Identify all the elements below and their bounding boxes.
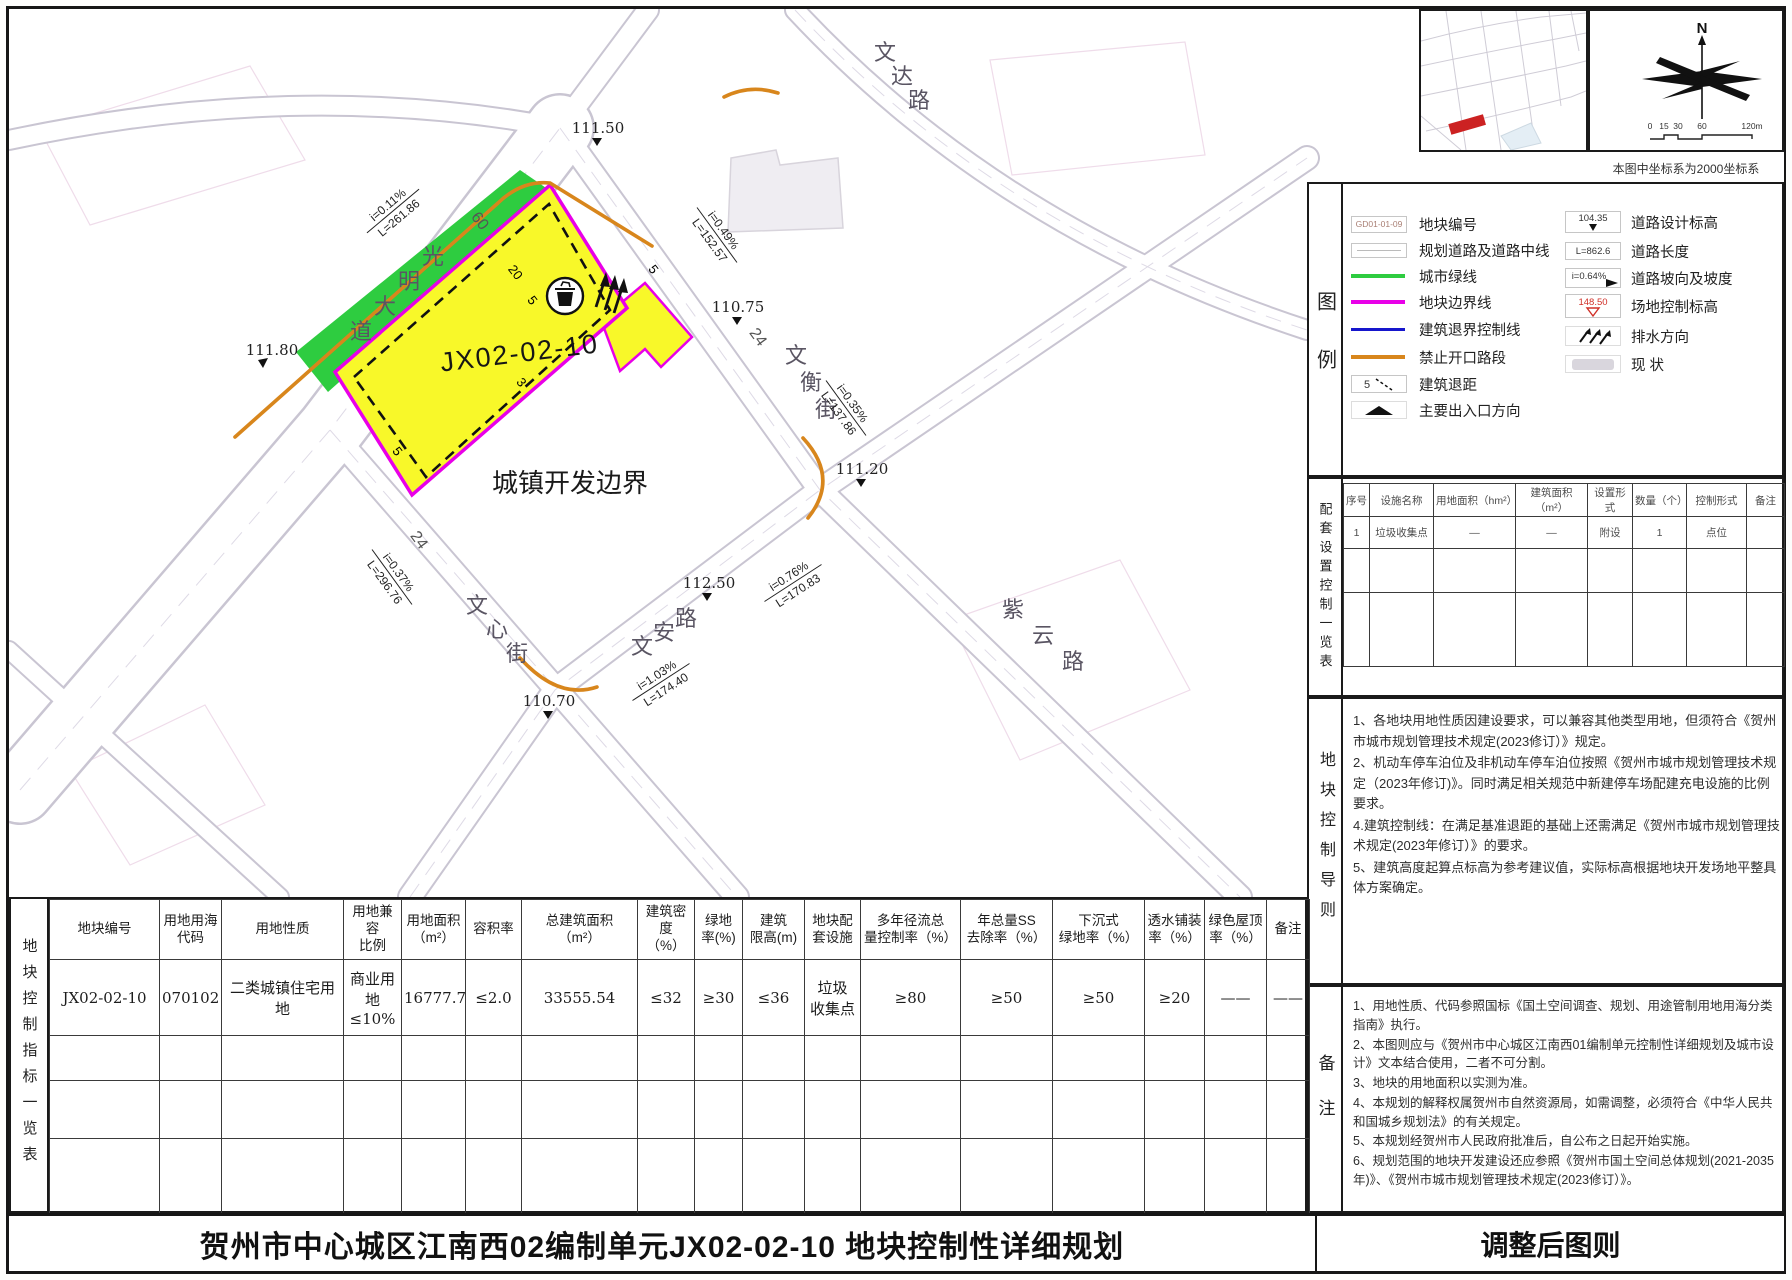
table-cell: 垃圾 收集点 [805, 960, 861, 1036]
empty-cell [1205, 1139, 1267, 1216]
setback-line-swatch [1351, 328, 1405, 331]
road-slope-swatch: i=0.64% [1565, 268, 1621, 288]
empty-cell [743, 1081, 805, 1139]
setback-sample: 5 [1364, 379, 1370, 391]
empty-cell [402, 1139, 466, 1216]
empty-cell [344, 1036, 402, 1081]
empty-cell [522, 1036, 638, 1081]
compass: N 0 15 30 60 120m [1590, 11, 1782, 150]
parcel-code-swatch: GD01-01-09 [1351, 216, 1407, 233]
empty-cell [344, 1139, 402, 1216]
table-cell: 用地性质 [222, 900, 344, 960]
empty-cell [638, 1081, 695, 1139]
legend-item-label: 建筑退界控制线 [1419, 319, 1521, 340]
empty-cell [805, 1036, 861, 1081]
facilities-data-row: 1垃圾收集点——附设1点位 [1344, 517, 1785, 549]
empty-cell [1516, 593, 1588, 667]
legend-item-label: 地块编号 [1419, 214, 1477, 235]
empty-cell [638, 1036, 695, 1081]
table-cell: 绿色屋顶 率（%） [1205, 900, 1267, 960]
trash-collection-icon [547, 278, 583, 314]
elevation-value: 112.50 [683, 574, 736, 592]
empty-cell [1267, 1081, 1310, 1139]
guideline-item: 1、各地块用地性质因建设要求，可以兼容其他类型用地，但须符合《贺州市城市规划管理… [1353, 711, 1781, 752]
road-elevation-swatch: 104.35 [1565, 211, 1621, 233]
no-opening-swatch [1351, 355, 1405, 359]
legend-item-label: 现 状 [1631, 354, 1664, 375]
empty-cell [50, 1081, 160, 1139]
guideline-item: 4.建筑控制线：在满足基准退距的基础上还需满足《贺州市城市规划管理技术规定(20… [1353, 816, 1781, 857]
empty-cell [695, 1081, 743, 1139]
empty-cell [1633, 549, 1687, 593]
table-cell: —— [1267, 960, 1310, 1036]
green-line-swatch [1351, 274, 1405, 278]
table-cell: 序号 [1344, 484, 1370, 517]
empty-cell [695, 1036, 743, 1081]
remarks-item: 4、本规划的解释权属贺州市自然资源局，如需调整，必须符合《中华人民共和国城乡规划… [1353, 1094, 1781, 1132]
table-cell: 垃圾收集点 [1370, 517, 1434, 549]
empty-cell [638, 1139, 695, 1216]
legend-item-label: 场地控制标高 [1631, 296, 1718, 317]
empty-cell [402, 1036, 466, 1081]
remarks-item: 6、规划范围的地块开发建设还应参照《贺州市国土空间总体规划(2021-2035年… [1353, 1152, 1781, 1190]
empty-cell [1687, 549, 1747, 593]
empty-cell [1205, 1036, 1267, 1081]
table-cell: 设置形式 [1588, 484, 1633, 517]
table-cell: 设施名称 [1370, 484, 1434, 517]
title-bar: 贺州市中心城区江南西02编制单元JX02-02-10 地块控制性详细规划 调整后… [9, 1213, 1784, 1271]
empty-cell [961, 1036, 1053, 1081]
empty-cell [1145, 1139, 1205, 1216]
legend-item-label: 规划道路及道路中线 [1419, 240, 1550, 261]
facilities-section: 配套设置控制一览表 序号设施名称用地面积（hm²）建筑面积（m²）设置形式数量（… [1307, 477, 1784, 697]
road-elevation-sample: 104.35 [1578, 213, 1607, 224]
empty-cell [1370, 549, 1434, 593]
table-cell: 二类城镇住宅用地 [222, 960, 344, 1036]
table-cell: 地块配 套设施 [805, 900, 861, 960]
empty-cell [861, 1139, 961, 1216]
svg-text:30: 30 [1673, 121, 1683, 131]
table-cell: 绿地 率(%) [695, 900, 743, 960]
elevation-value: 111.80 [246, 341, 299, 359]
table-cell: 16777.77 [402, 960, 466, 1036]
table-cell: ≥30 [695, 960, 743, 1036]
legend-item-label: 主要出入口方向 [1419, 400, 1521, 421]
svg-text:120m: 120m [1741, 121, 1762, 131]
remarks-title: 备注 [1313, 1054, 1338, 1144]
table-cell [1747, 517, 1785, 549]
parcel-boundary-swatch [1351, 300, 1405, 304]
empty-cell [160, 1139, 222, 1216]
remarks-item: 3、地块的用地面积以实测为准。 [1353, 1074, 1781, 1093]
empty-cell [344, 1081, 402, 1139]
drainage-direction-swatch [1565, 326, 1621, 346]
remarks-section: 备注 1、用地性质、代码参照国标《国土空间调查、规划、用途管制用地用海分类指南》… [1307, 985, 1784, 1213]
legend-item-label: 地块边界线 [1419, 292, 1492, 313]
elevation-value: 111.20 [836, 460, 889, 478]
empty-cell [1747, 549, 1785, 593]
table-cell: ≤2.0 [466, 960, 522, 1036]
table-cell: —— [1205, 960, 1267, 1036]
site-elevation-swatch: 148.50 [1565, 294, 1621, 318]
scale-bar: 0 15 30 60 120m [1648, 121, 1763, 139]
table-cell: JX02-02-10 [50, 960, 160, 1036]
table-cell: 用地面积（hm²） [1434, 484, 1516, 517]
existing-state-swatch [1565, 355, 1621, 373]
table-cell: 点位 [1687, 517, 1747, 549]
guideline-section: 地块控制导则 1、各地块用地性质因建设要求，可以兼容其他类型用地，但须符合《贺州… [1307, 697, 1784, 985]
guideline-item: 2、机动车停车泊位及非机动车停车泊位按照《贺州市城市规划管理技术规定（2023年… [1353, 753, 1781, 815]
sheet-main-title: 贺州市中心城区江南西02编制单元JX02-02-10 地块控制性详细规划 [9, 1216, 1317, 1271]
coordinate-note: 本图中坐标系为2000坐标系 [1588, 160, 1784, 177]
remarks-item: 1、用地性质、代码参照国标《国土空间调查、规划、用途管制用地用海分类指南》执行。 [1353, 997, 1781, 1035]
empty-cell [695, 1139, 743, 1216]
location-inset-map [1421, 11, 1586, 150]
table-cell: 070102 [160, 960, 222, 1036]
indicator-empty-row [50, 1139, 1310, 1216]
elevation-value: 110.75 [712, 298, 765, 316]
plan-sheet: JX02-02-10 城镇开发边界 光明大道 文达路 文衡街 文心街 文安路 紫… [0, 0, 1792, 1280]
empty-cell [1588, 549, 1633, 593]
table-cell: 控制形式 [1687, 484, 1747, 517]
table-cell: 附设 [1588, 517, 1633, 549]
table-cell: ≥20 [1145, 960, 1205, 1036]
guideline-item: 5、建筑高度起算点标高为参考建议值，实际标高根据地块开发场地平整具体方案确定。 [1353, 858, 1781, 899]
empty-cell [1370, 593, 1434, 667]
development-boundary-label: 城镇开发边界 [492, 468, 648, 498]
empty-cell [1267, 1036, 1310, 1081]
compass-box: N 0 15 30 60 120m [1588, 9, 1784, 152]
table-cell: 用地面积 （m²） [402, 900, 466, 960]
empty-cell [160, 1081, 222, 1139]
table-cell: 总建筑面积 （m²） [522, 900, 638, 960]
table-cell: ≥50 [961, 960, 1053, 1036]
empty-cell [961, 1139, 1053, 1216]
table-cell: 数量（个） [1633, 484, 1687, 517]
legend-section: 图例 GD01-01-09 地块编号 规划道路及道路中线 城市绿线 地块边界线 … [1307, 182, 1784, 477]
legend-item-label: 道路设计标高 [1631, 212, 1718, 233]
legend-item-label: 排水方向 [1631, 326, 1689, 347]
legend-item-label: 道路坡向及坡度 [1631, 268, 1733, 289]
empty-cell [1344, 593, 1370, 667]
table-cell: ≥80 [861, 960, 961, 1036]
table-cell: ≤36 [743, 960, 805, 1036]
remarks-item: 2、本图则应与《贺州市中心城区江南西01编制单元控制性详细规划及城市设计》文本结… [1353, 1036, 1781, 1074]
facilities-empty-row [1344, 593, 1785, 667]
facilities-header-row: 序号设施名称用地面积（hm²）建筑面积（m²）设置形式数量（个）控制形式备注 [1344, 484, 1785, 517]
remarks-text: 1、用地性质、代码参照国标《国土空间调查、规划、用途管制用地用海分类指南》执行。… [1343, 987, 1792, 1191]
legend-item-label: 禁止开口路段 [1419, 347, 1506, 368]
empty-cell [861, 1036, 961, 1081]
table-cell: 建筑密度 （%） [638, 900, 695, 960]
empty-cell [1205, 1081, 1267, 1139]
indicator-header-row: 地块编号用地用海 代码用地性质用地兼容 比例用地面积 （m²）容积率总建筑面积 … [50, 900, 1310, 960]
table-cell: — [1516, 517, 1588, 549]
entrance-direction-swatch [1351, 401, 1407, 419]
indicator-empty-row [50, 1036, 1310, 1081]
empty-cell [1687, 593, 1747, 667]
indicator-table: 地块编号用地用海 代码用地性质用地兼容 比例用地面积 （m²）容积率总建筑面积 … [49, 899, 1310, 1216]
empty-cell [402, 1081, 466, 1139]
north-label: N [1697, 20, 1708, 37]
empty-cell [1267, 1139, 1310, 1216]
empty-cell [1588, 593, 1633, 667]
empty-cell [1053, 1036, 1145, 1081]
table-cell: 33555.54 [522, 960, 638, 1036]
svg-text:60: 60 [1697, 121, 1707, 131]
site-elevation-sample: 148.50 [1578, 297, 1607, 308]
empty-cell [50, 1036, 160, 1081]
empty-cell [805, 1139, 861, 1216]
empty-cell [222, 1036, 344, 1081]
table-cell: 建筑 限高(m) [743, 900, 805, 960]
table-cell: 用地用海 代码 [160, 900, 222, 960]
empty-cell [1145, 1036, 1205, 1081]
facilities-empty-row [1344, 549, 1785, 593]
planned-road-swatch [1351, 243, 1407, 258]
empty-cell [466, 1081, 522, 1139]
empty-cell [1434, 549, 1516, 593]
road-slope-sample: i=0.64% [1572, 271, 1607, 282]
indicator-title: 地块控制指标一览表 [19, 938, 40, 1172]
empty-cell [160, 1036, 222, 1081]
elevation-value: 110.70 [523, 692, 576, 710]
empty-cell [222, 1139, 344, 1216]
elevation-value: 111.50 [572, 119, 625, 137]
empty-cell [1516, 549, 1588, 593]
legend-item-label: 道路长度 [1631, 241, 1689, 262]
table-cell: 透水铺装 率（%） [1145, 900, 1205, 960]
table-cell: 1 [1633, 517, 1687, 549]
table-cell: 商业用地 ≤10% [344, 960, 402, 1036]
table-cell: 下沉式 绿地率（%） [1053, 900, 1145, 960]
table-cell: ≤32 [638, 960, 695, 1036]
table-cell: ≥50 [1053, 960, 1145, 1036]
guideline-text: 1、各地块用地性质因建设要求，可以兼容其他类型用地，但须符合《贺州市城市规划管理… [1343, 701, 1792, 900]
legend-item-label: 建筑退距 [1419, 374, 1477, 395]
remarks-item: 5、本规划经贺州市人民政府批准后，自公布之日起开始实施。 [1353, 1132, 1781, 1151]
empty-cell [1747, 593, 1785, 667]
empty-cell [50, 1139, 160, 1216]
road-length-swatch: L=862.6 [1565, 242, 1621, 260]
legend-item-label: 城市绿线 [1419, 266, 1477, 287]
indicator-empty-row [50, 1081, 1310, 1139]
legend-title: 图例 [1311, 253, 1340, 407]
empty-cell [466, 1036, 522, 1081]
empty-cell [961, 1081, 1053, 1139]
table-cell: 备注 [1747, 484, 1785, 517]
table-cell: — [1434, 517, 1516, 549]
guideline-title: 地块控制导则 [1313, 751, 1337, 931]
table-cell: 1 [1344, 517, 1370, 549]
table-cell: 容积率 [466, 900, 522, 960]
facilities-table: 序号设施名称用地面积（hm²）建筑面积（m²）设置形式数量（个）控制形式备注 1… [1343, 483, 1785, 667]
svg-text:15: 15 [1659, 121, 1669, 131]
empty-cell [1145, 1081, 1205, 1139]
sheet-side-title: 调整后图则 [1317, 1216, 1784, 1271]
table-cell: 用地兼容 比例 [344, 900, 402, 960]
empty-cell [805, 1081, 861, 1139]
empty-cell [522, 1081, 638, 1139]
indicator-section: 地块控制指标一览表 地块编号用地用海 代码用地性质用地兼容 比例用地面积 （m²… [9, 897, 1307, 1213]
empty-cell [1344, 549, 1370, 593]
empty-cell [1434, 593, 1516, 667]
empty-cell [1053, 1139, 1145, 1216]
empty-cell [522, 1139, 638, 1216]
empty-cell [743, 1036, 805, 1081]
setback-distance-swatch: 5 [1351, 375, 1407, 393]
table-cell: 多年径流总 量控制率（%） [861, 900, 961, 960]
indicator-data-row: JX02-02-10070102二类城镇住宅用地商业用地 ≤10%16777.7… [50, 960, 1310, 1036]
location-inset-box [1419, 9, 1588, 152]
table-cell: 地块编号 [50, 900, 160, 960]
table-cell: 备注 [1267, 900, 1310, 960]
table-cell: 年总量SS 去除率（%） [961, 900, 1053, 960]
table-cell: 建筑面积（m²） [1516, 484, 1588, 517]
svg-text:0: 0 [1648, 121, 1653, 131]
empty-cell [861, 1081, 961, 1139]
empty-cell [466, 1139, 522, 1216]
empty-cell [222, 1081, 344, 1139]
inset-parcel-marker [1448, 114, 1486, 134]
empty-cell [743, 1139, 805, 1216]
empty-cell [1633, 593, 1687, 667]
empty-cell [1053, 1081, 1145, 1139]
facilities-title: 配套设置控制一览表 [1316, 502, 1335, 673]
